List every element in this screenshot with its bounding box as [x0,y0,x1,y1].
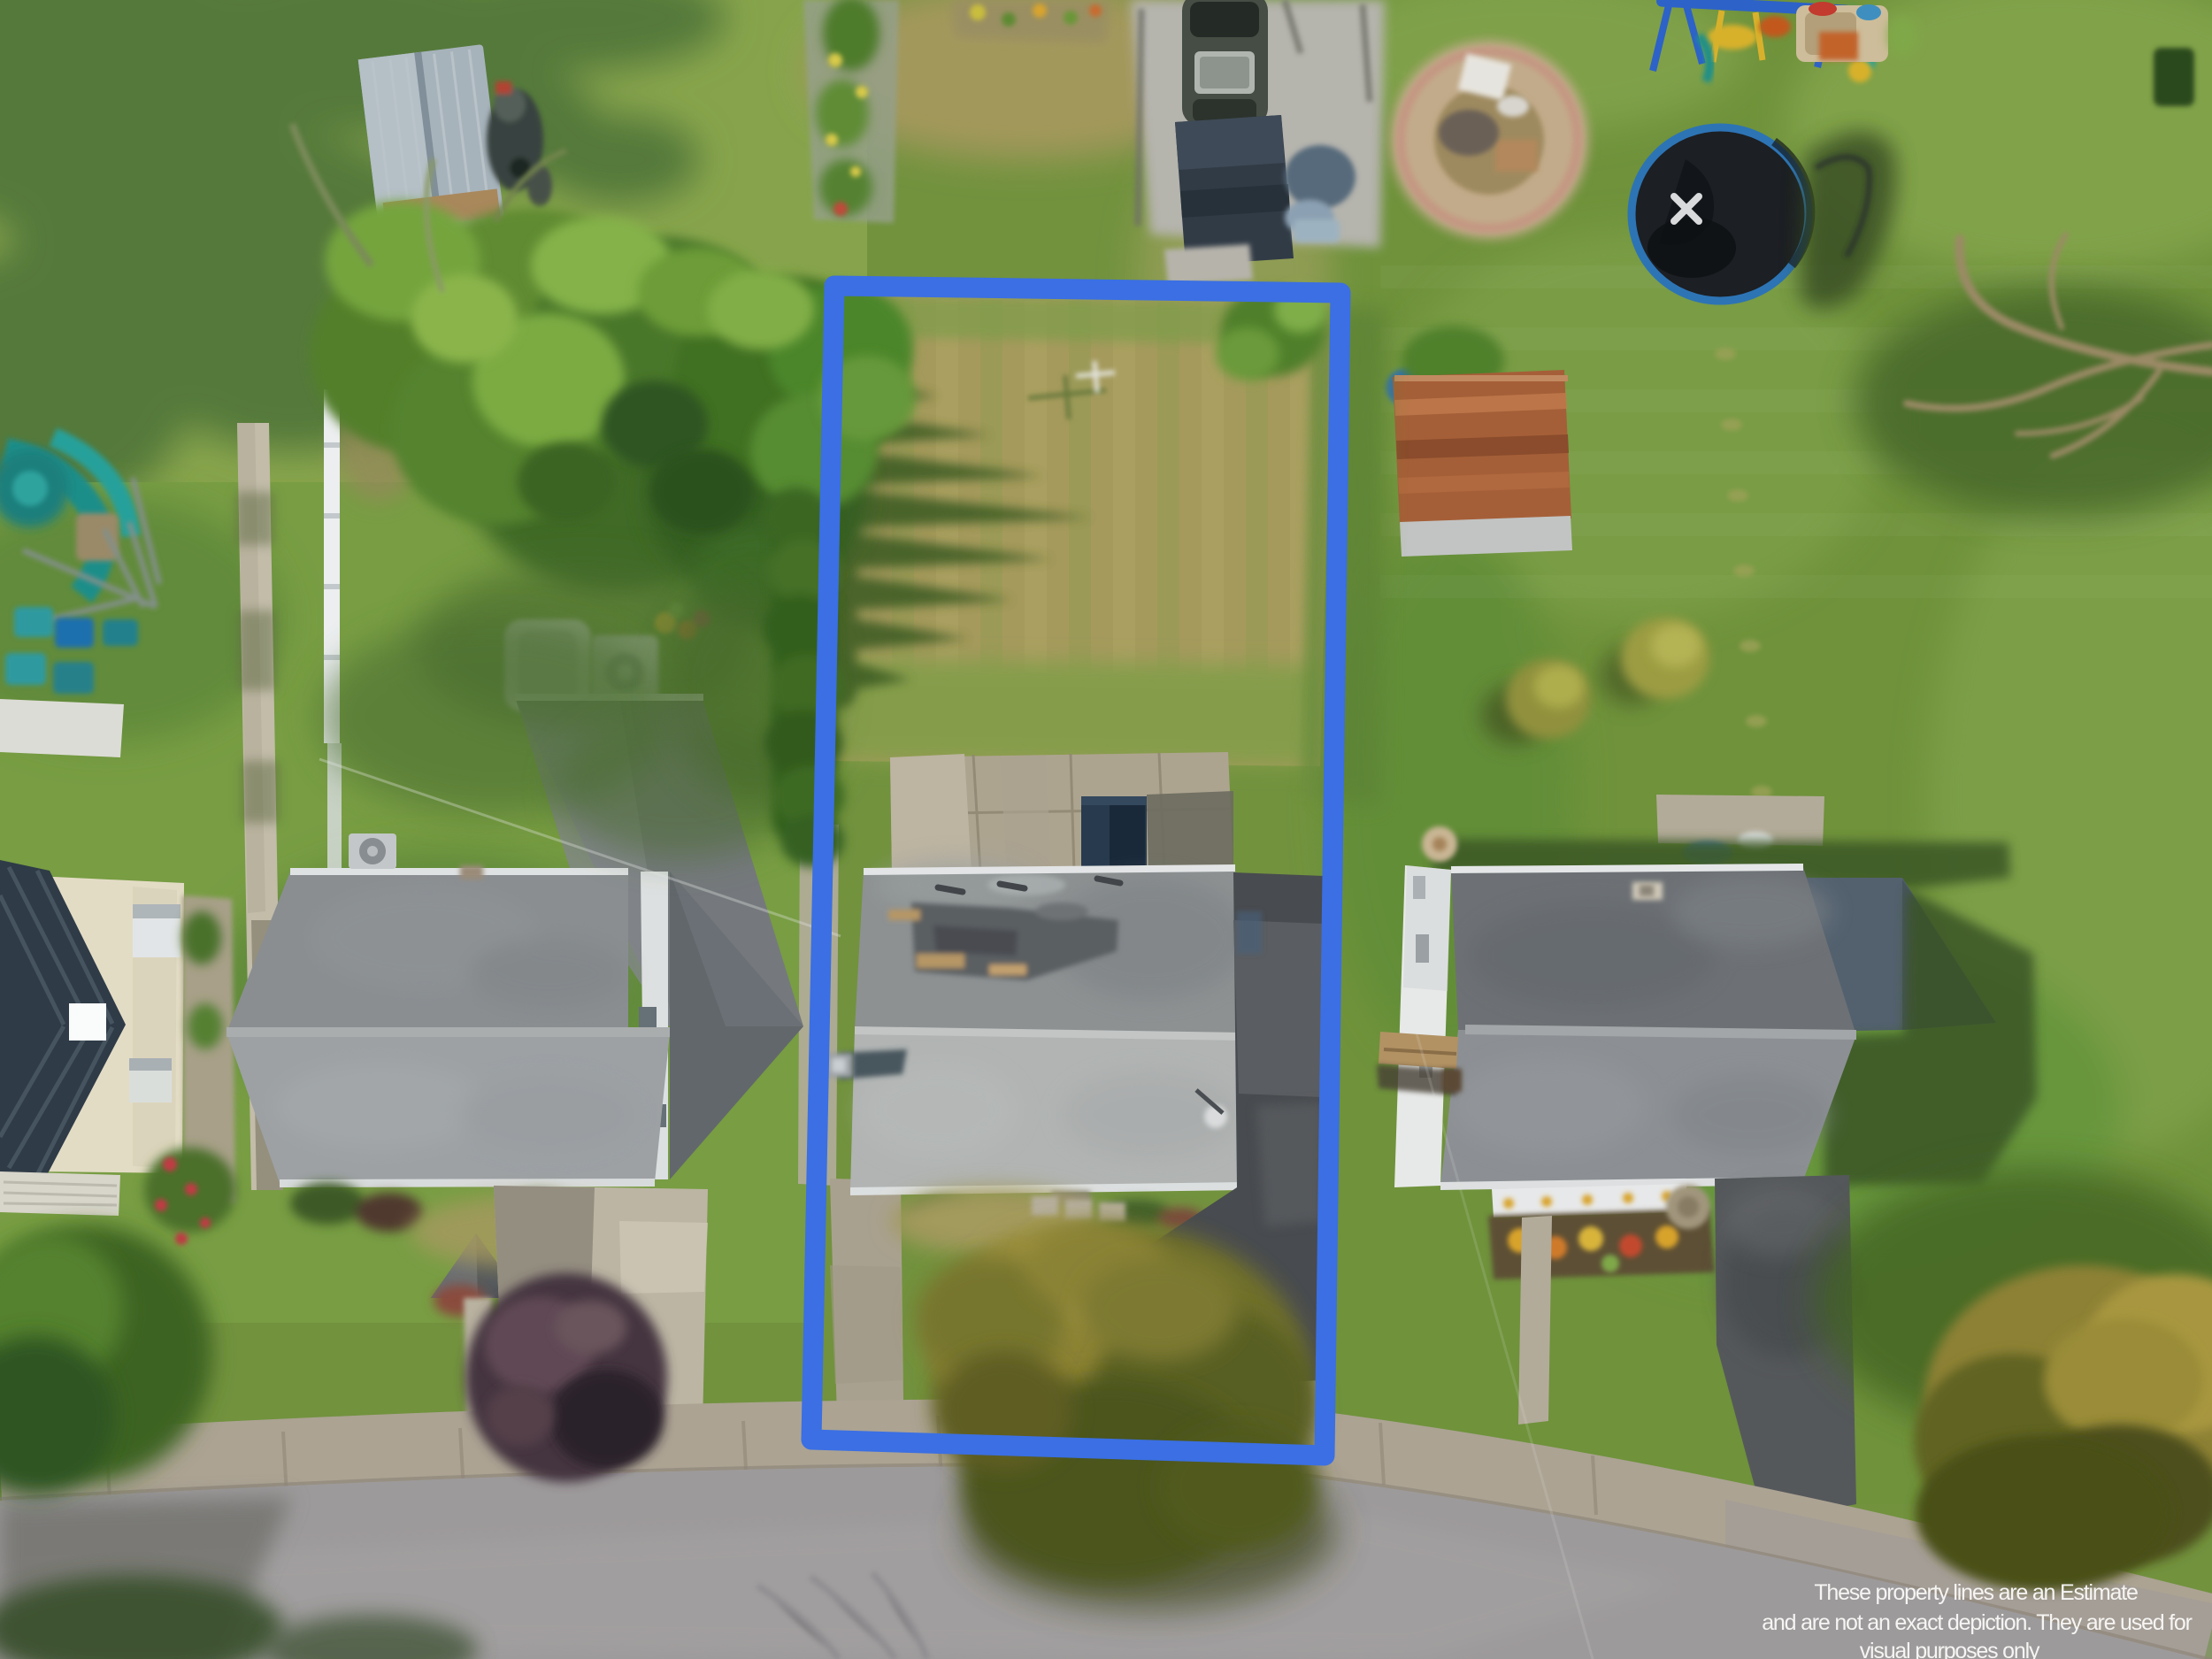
svg-text:and are not an exact depiction: and are not an exact depiction. They are… [1762,1610,2192,1635]
svg-text:visual purposes only: visual purposes only [1860,1639,2040,1659]
svg-text:These property lines are an Es: These property lines are an Estimate [1814,1580,2138,1605]
